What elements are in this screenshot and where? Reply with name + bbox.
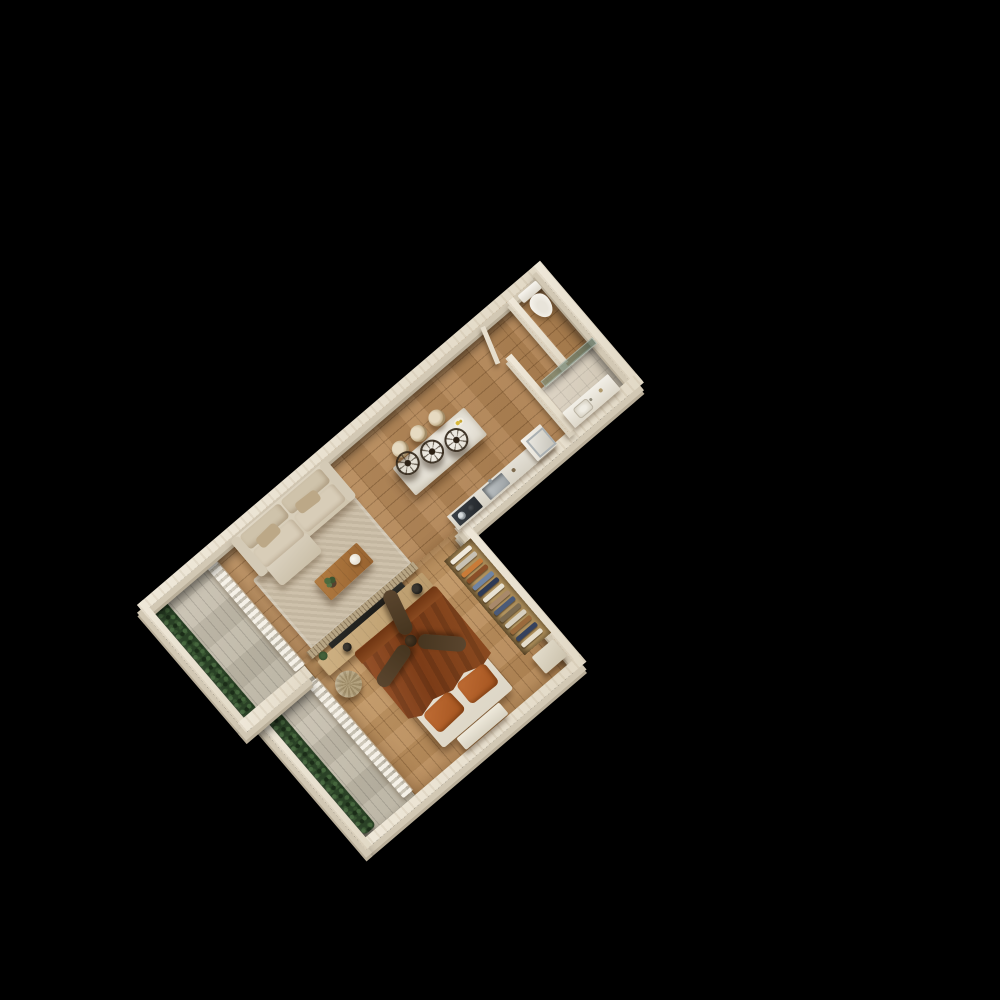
render-canvas xyxy=(0,0,1000,1000)
pot xyxy=(467,503,477,513)
faucet xyxy=(487,478,493,484)
pot xyxy=(456,510,467,521)
vanity-faucet xyxy=(589,397,593,401)
apartment-floor-plan xyxy=(137,261,758,860)
table-plant-leaves xyxy=(320,572,338,590)
lemon xyxy=(459,419,463,423)
vanity-accessory xyxy=(598,388,604,394)
table-bowl xyxy=(347,552,363,568)
decor-bowl xyxy=(341,641,354,654)
